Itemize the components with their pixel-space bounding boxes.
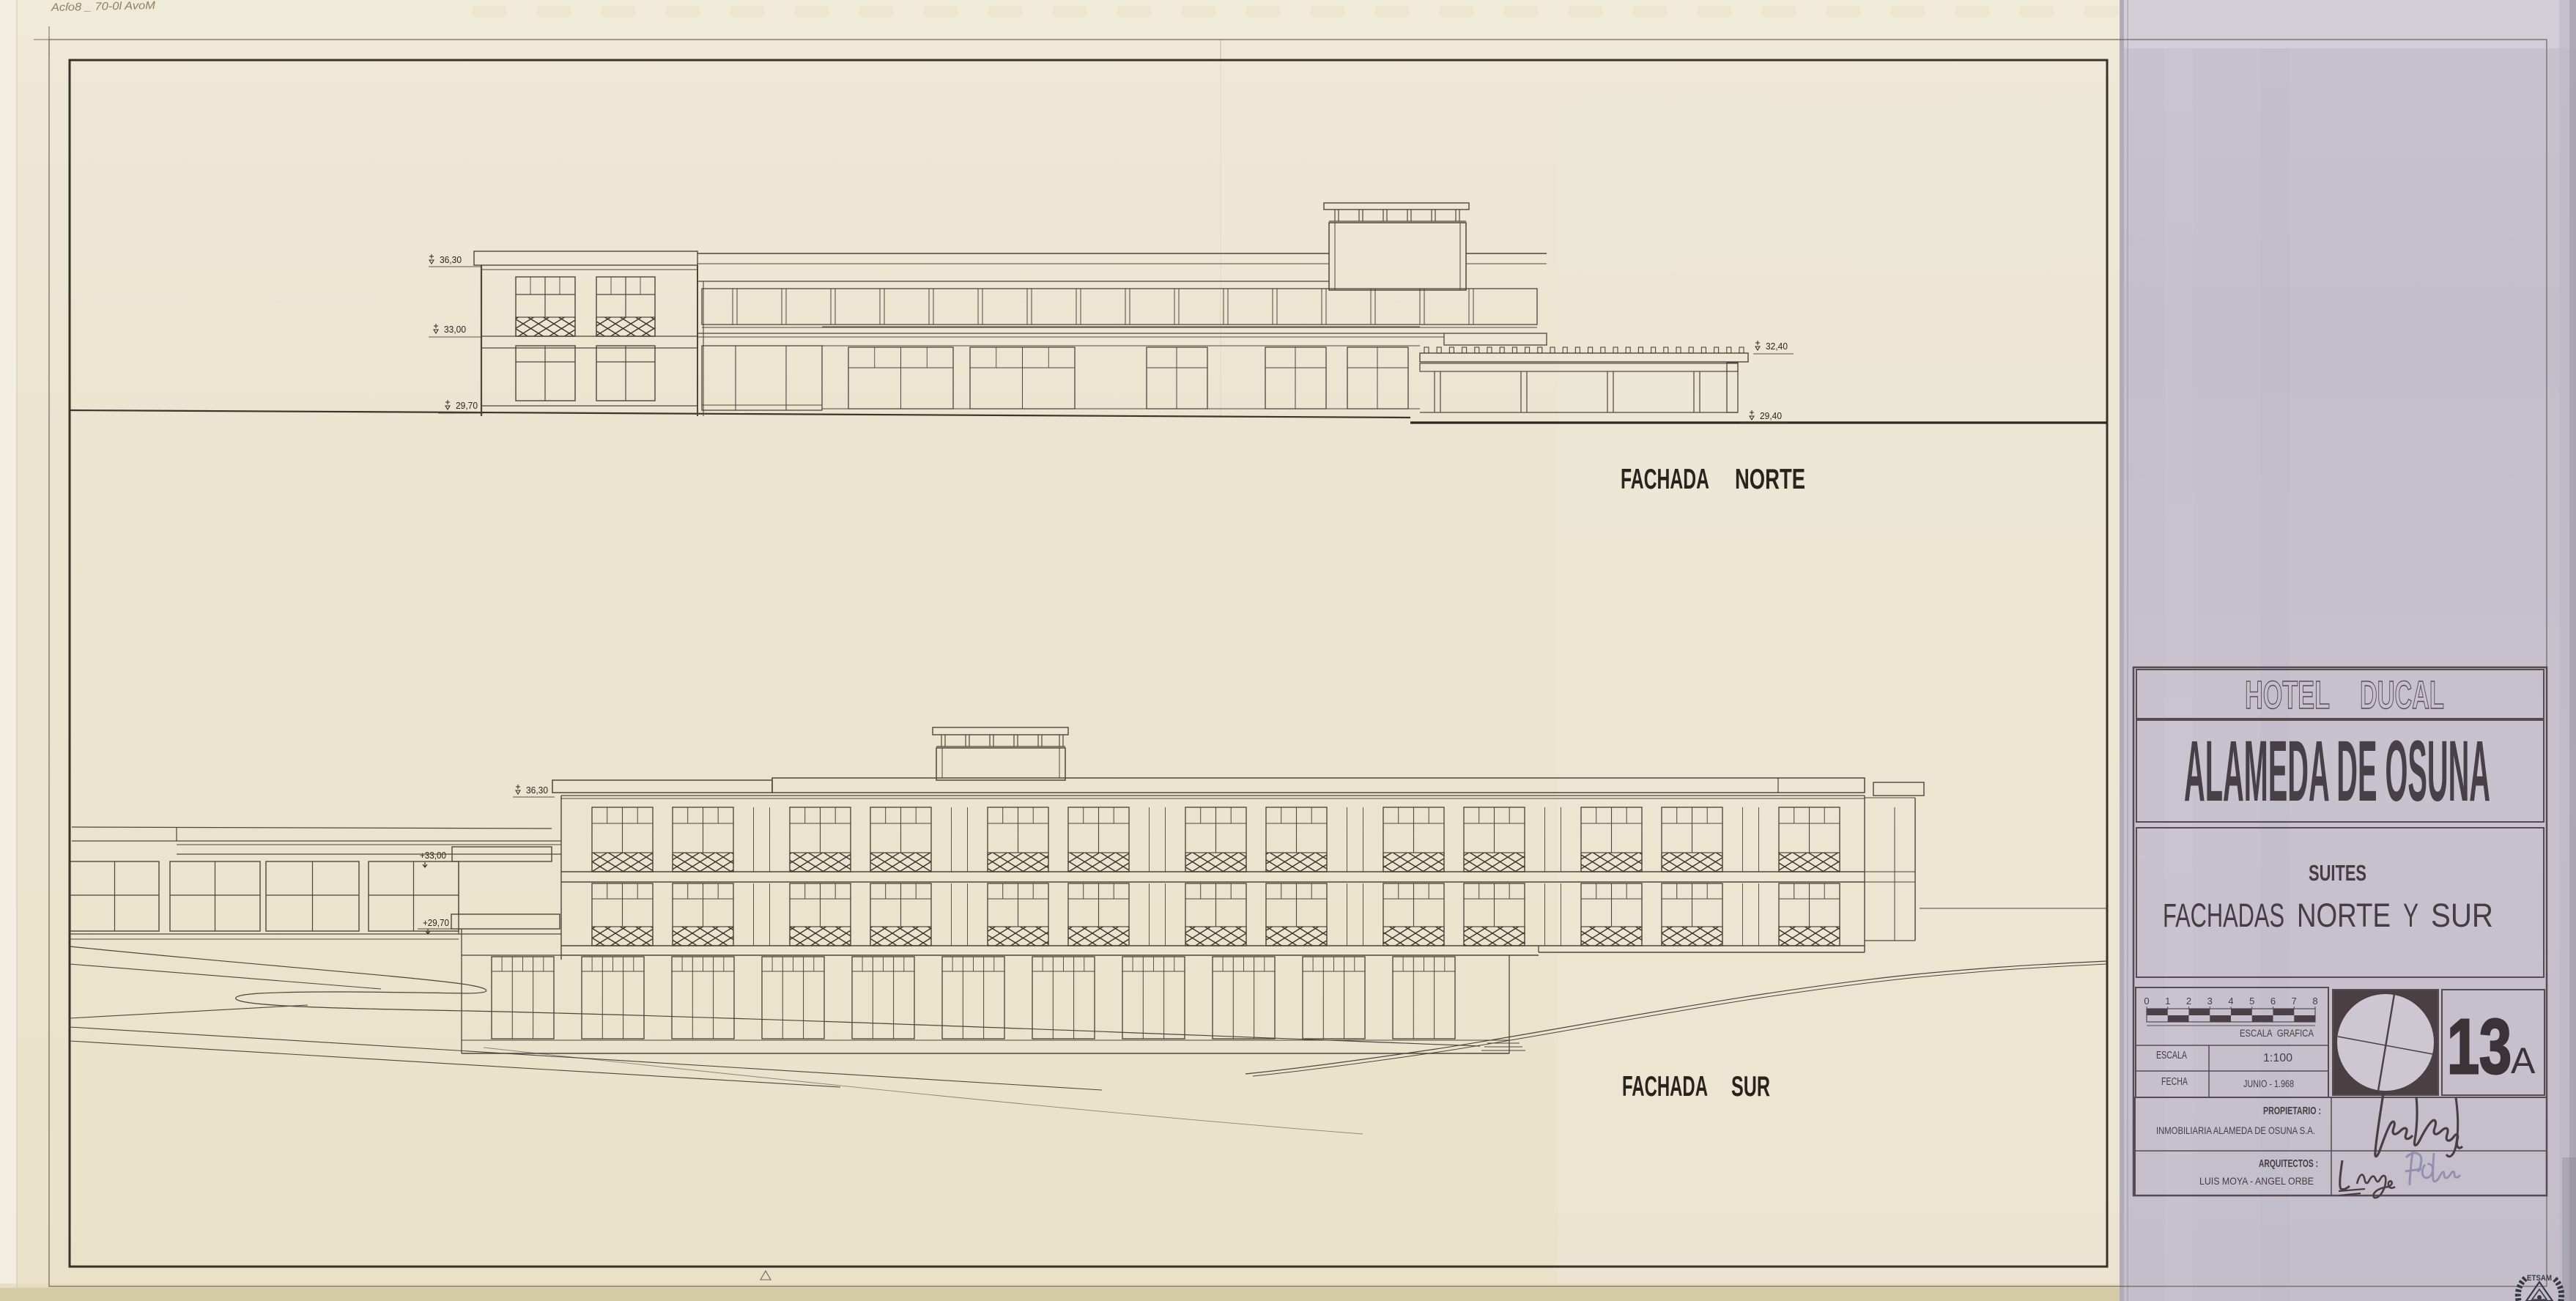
svg-text:5: 5 <box>2249 996 2254 1007</box>
svg-text:+29,70: +29,70 <box>423 917 449 928</box>
svg-text:7: 7 <box>2292 996 2297 1007</box>
svg-text:0: 0 <box>2144 996 2149 1007</box>
svg-text:FECHA: FECHA <box>2161 1076 2188 1088</box>
svg-text:ESCALA: ESCALA <box>2156 1050 2187 1061</box>
svg-text:1:100: 1:100 <box>2263 1052 2292 1064</box>
svg-text:JUNIO - 1.968: JUNIO - 1.968 <box>2243 1078 2294 1089</box>
svg-text:ARQUITECTOS :: ARQUITECTOS : <box>2259 1157 2318 1170</box>
svg-text:32,40: 32,40 <box>1766 341 1788 352</box>
svg-text:8: 8 <box>2312 996 2317 1007</box>
svg-text:A: A <box>2511 1040 2536 1081</box>
svg-text:6: 6 <box>2270 996 2276 1007</box>
svg-text:NORTE: NORTE <box>2297 897 2391 934</box>
svg-text:36,30: 36,30 <box>440 254 462 265</box>
svg-text:LUIS MOYA - ANGEL ORBE: LUIS MOYA - ANGEL ORBE <box>2199 1176 2314 1187</box>
svg-text:33,00: 33,00 <box>444 324 466 335</box>
svg-text:INMOBILIARIA ALAMEDA DE OSUNA: INMOBILIARIA ALAMEDA DE OSUNA S.A. <box>2156 1125 2315 1136</box>
svg-text:29,40: 29,40 <box>1760 410 1782 421</box>
svg-text:SUR: SUR <box>1731 1071 1770 1102</box>
svg-text:SUITES: SUITES <box>2309 860 2366 886</box>
svg-text:NORTE: NORTE <box>1735 464 1805 495</box>
svg-text:Y: Y <box>2403 897 2418 934</box>
svg-text:FACHADA: FACHADA <box>1621 464 1709 495</box>
svg-text:13: 13 <box>2447 1004 2512 1090</box>
svg-text:ALAMEDA DE OSUNA: ALAMEDA DE OSUNA <box>2184 723 2490 820</box>
svg-text:4: 4 <box>2228 996 2233 1007</box>
svg-text:29,70: 29,70 <box>456 400 478 411</box>
svg-text:SUR: SUR <box>2431 897 2493 934</box>
svg-text:DUCAL: DUCAL <box>2360 673 2444 717</box>
svg-text:ESCALA GRAFICA: ESCALA GRAFICA <box>2240 1027 2314 1039</box>
svg-text:PROPIETARIO :: PROPIETARIO : <box>2263 1105 2321 1117</box>
svg-text:3: 3 <box>2207 996 2213 1007</box>
svg-text:1: 1 <box>2165 996 2170 1007</box>
svg-text:HOTEL: HOTEL <box>2245 673 2330 717</box>
svg-text:FACHADAS: FACHADAS <box>2163 897 2284 934</box>
svg-text:2: 2 <box>2186 996 2191 1007</box>
svg-text:Acſo8 _ 70-0l AvoM: Acſo8 _ 70-0l AvoM <box>51 0 156 14</box>
svg-text:+33,00: +33,00 <box>420 850 446 861</box>
svg-text:ETSAM: ETSAM <box>2527 1274 2552 1283</box>
svg-text:36,30: 36,30 <box>526 785 548 796</box>
svg-text:FACHADA: FACHADA <box>1622 1071 1708 1102</box>
